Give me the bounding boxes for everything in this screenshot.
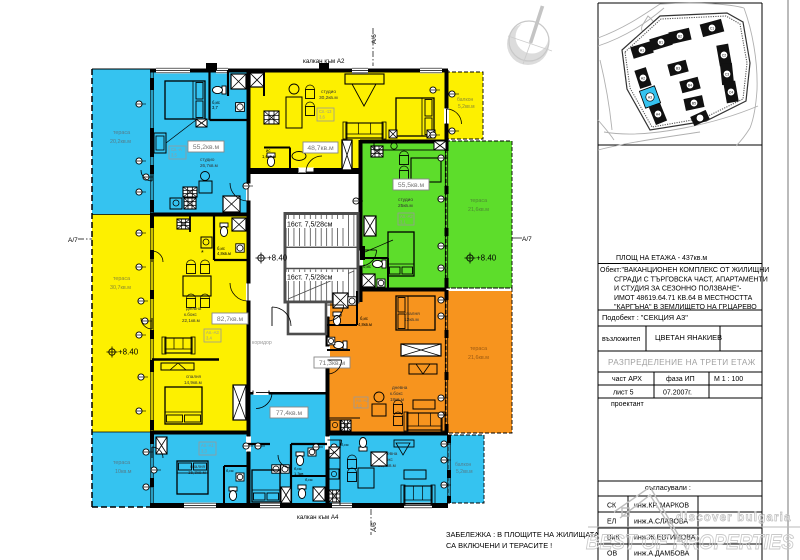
svg-text:Обект:"ВАКАНЦИОНЕН КОМПЛЕКС ОТ: Обект:"ВАКАНЦИОНЕН КОМПЛЕКС ОТ ЖИЛИЩНИ [600, 266, 769, 274]
svg-text:48,7кв.м: 48,7кв.м [307, 145, 334, 152]
svg-text:Подобект : "СЕКЦИЯ А3": Подобект : "СЕКЦИЯ А3" [602, 313, 688, 322]
svg-text:discover bulgaria: discover bulgaria [676, 512, 792, 524]
svg-text:+8.40: +8.40 [118, 348, 139, 357]
svg-text:C1: C1 [710, 26, 714, 30]
svg-text:C4: C4 [729, 90, 733, 94]
svg-text:ИМОТ 48619.64.71 КВ.64 В МЕСТН: ИМОТ 48619.64.71 КВ.64 В МЕСТНОСТТА [614, 295, 753, 302]
svg-text:Ап.-А3: Ап.-А3 [206, 330, 219, 335]
svg-text:3,4: 3,4 [206, 336, 212, 341]
svg-text:б,ис: б,ис [305, 477, 313, 482]
svg-text:тераса: тераса [470, 198, 487, 204]
svg-text:+8.40: +8.40 [267, 254, 288, 263]
svg-text:"КАРГЪНА" В ЗЕМЛИЩЕТО НА ГР.ЦА: "КАРГЪНА" В ЗЕМЛИЩЕТО НА ГР.ЦАРЕВО [614, 304, 757, 311]
svg-text:балкон: балкон [455, 462, 471, 468]
svg-text:A1: A1 [640, 48, 644, 52]
svg-text:77,4кв.м: 77,4кв.м [276, 410, 303, 417]
svg-text:спалня: спалня [190, 464, 206, 469]
svg-text:А/6: А/6 [371, 522, 378, 532]
svg-text:Ап.-А3: Ап.-А3 [356, 398, 369, 403]
svg-text:Сп.-А: Сп.-А [171, 147, 182, 152]
svg-text:B2: B2 [678, 34, 682, 38]
svg-text:студио: студио [398, 198, 413, 203]
svg-text:25кв.м: 25кв.м [398, 203, 413, 209]
svg-text:И СТУДИЯ ЗА СЕЗОННО ПОЛЗВАНЕ"-: И СТУДИЯ ЗА СЕЗОННО ПОЛЗВАНЕ"- [614, 286, 742, 293]
svg-text:ЗАБЕЛЕЖКА : В ПЛОЩИТЕ НА Ж: ЗАБЕЛЕЖКА : В ПЛОЩИТЕ НА ЖИЛИЩАТА [446, 530, 599, 539]
svg-text:СА ВКЛЮЧЕНИ И ТЕРАСИТЕ !: СА ВКЛЮЧЕНИ И ТЕРАСИТЕ ! [446, 541, 552, 550]
svg-text:б,ис: б,ис [226, 468, 234, 473]
svg-text:проектант: проектант [611, 401, 644, 408]
svg-text:к.бокс: к.бокс [390, 391, 404, 396]
svg-text:ЕЛ: ЕЛ [607, 519, 617, 526]
svg-text:3,2: 3,2 [356, 404, 362, 409]
svg-text:калкан към А2: калкан към А2 [303, 58, 345, 65]
svg-text:14,9кв.м: 14,9кв.м [184, 380, 202, 385]
svg-text:30,7кв.м: 30,7кв.м [110, 285, 131, 291]
svg-text:B5: B5 [692, 101, 696, 105]
svg-text:ПЛОЩ НА ЕТАЖА - 437кв.м: ПЛОЩ НА ЕТАЖА - 437кв.м [616, 255, 707, 262]
svg-text:тераса: тераса [470, 346, 487, 352]
svg-text:дневна: дневна [392, 385, 408, 390]
svg-text:4,8кв.м: 4,8кв.м [217, 251, 231, 256]
svg-text:20,2кв.м: 20,2кв.м [110, 139, 131, 145]
svg-text:BEST OF PROPERTIES: BEST OF PROPERTIES [586, 531, 794, 554]
svg-text:калкан към А4: калкан към А4 [297, 514, 339, 521]
svg-text:15,3кв.м: 15,3кв.м [188, 470, 206, 475]
svg-text:спалня: спалня [404, 312, 420, 317]
svg-text:спалня: спалня [186, 374, 202, 379]
svg-text:21,6кв.м: 21,6кв.м [468, 207, 489, 213]
svg-text:A4: A4 [656, 112, 660, 116]
svg-text:1,6кв.м: 1,6кв.м [262, 154, 276, 159]
svg-text:12кв.м: 12кв.м [404, 317, 419, 323]
svg-text:55,5кв.м: 55,5кв.м [398, 182, 425, 189]
svg-text:студио: студио [321, 90, 336, 95]
svg-text:3,6: 3,6 [319, 115, 325, 120]
svg-text:А/7: А/7 [522, 236, 532, 243]
svg-text:*: * [201, 250, 204, 257]
svg-text:б,ис: б,ис [360, 316, 368, 321]
svg-text:82,7кв.м: 82,7кв.м [217, 316, 244, 323]
svg-text:ЦВЕТАН ЯНАКИЕВ: ЦВЕТАН ЯНАКИЕВ [655, 333, 722, 342]
svg-text:30,2кв.м: 30,2кв.м [319, 95, 338, 101]
svg-text:Сп.-13: Сп.-13 [319, 109, 332, 114]
svg-text:10кв.м: 10кв.м [115, 469, 132, 475]
svg-text:26,7кв.м: 26,7кв.м [200, 163, 218, 168]
svg-text:СК: СК [607, 503, 617, 510]
svg-text:СГРАДИ С ТЪРГОВСКА ЧАСТ, АПАРТ: СГРАДИ С ТЪРГОВСКА ЧАСТ, АПАРТАМЕНТИ [614, 276, 768, 283]
svg-text:балкон: балкон [457, 97, 473, 103]
svg-text:А/7: А/7 [68, 237, 78, 244]
svg-text:тераса: тераса [113, 130, 130, 136]
svg-text:B1: B1 [659, 40, 663, 44]
svg-text:3,1: 3,1 [400, 220, 406, 225]
svg-text:18кв.м: 18кв.м [390, 397, 404, 402]
svg-text:22,1кв.м: 22,1кв.м [182, 318, 200, 323]
svg-text:лист 5: лист 5 [613, 390, 634, 397]
svg-text:A2: A2 [641, 76, 645, 80]
svg-text:дневна: дневна [186, 306, 202, 311]
svg-text:55,2кв.м: 55,2кв.м [193, 144, 220, 151]
svg-text:07.2007г.: 07.2007г. [663, 390, 692, 397]
svg-text:Ап.-А1: Ап.-А1 [201, 443, 214, 448]
svg-text:възложител: възложител [602, 336, 640, 343]
svg-text:5,2кв.м: 5,2кв.м [458, 104, 475, 110]
svg-text:к.бокс: к.бокс [184, 312, 198, 317]
svg-text:А/6: А/6 [371, 34, 378, 44]
svg-text:1,3кв: 1,3кв [294, 471, 303, 476]
svg-text:B3: B3 [676, 66, 680, 70]
svg-text:тераса: тераса [113, 460, 130, 466]
svg-text:М 1 : 100: М 1 : 100 [714, 376, 743, 383]
svg-text:б,ис: б,ис [341, 442, 349, 447]
svg-text:16ст. 7,5/28см: 16ст. 7,5/28см [287, 275, 333, 282]
svg-text:B4: B4 [688, 83, 692, 87]
svg-text:Ап.-А2: Ап.-А2 [400, 214, 413, 219]
svg-text:C3: C3 [725, 72, 729, 76]
svg-text:коридор: коридор [252, 340, 272, 346]
svg-text:4,8кв.м: 4,8кв.м [358, 322, 372, 327]
svg-text:5,2кв.м: 5,2кв.м [456, 469, 473, 475]
svg-text:РАЗПРЕДЕЛЕНИЕ НА ТРЕТИ ЕТАЖ: РАЗПРЕДЕЛЕНИЕ НА ТРЕТИ ЕТАЖ [608, 358, 756, 367]
svg-text:21,6кв.м: 21,6кв.м [468, 355, 489, 361]
svg-text:част АРХ: част АРХ [612, 376, 642, 383]
svg-text:+8.40: +8.40 [476, 254, 497, 263]
svg-text:3,3: 3,3 [201, 449, 207, 454]
svg-text:ис: ис [266, 148, 270, 153]
svg-text:студио: студио [200, 157, 215, 162]
svg-text:16ст. 7,5/28см: 16ст. 7,5/28см [287, 222, 333, 229]
svg-text:C2: C2 [722, 53, 726, 57]
svg-text:тераса: тераса [113, 276, 130, 282]
svg-text:3,7: 3,7 [212, 105, 218, 110]
svg-text:A3: A3 [648, 95, 652, 99]
svg-text:3,5: 3,5 [171, 153, 177, 158]
svg-text:фаза ИП: фаза ИП [666, 376, 695, 383]
